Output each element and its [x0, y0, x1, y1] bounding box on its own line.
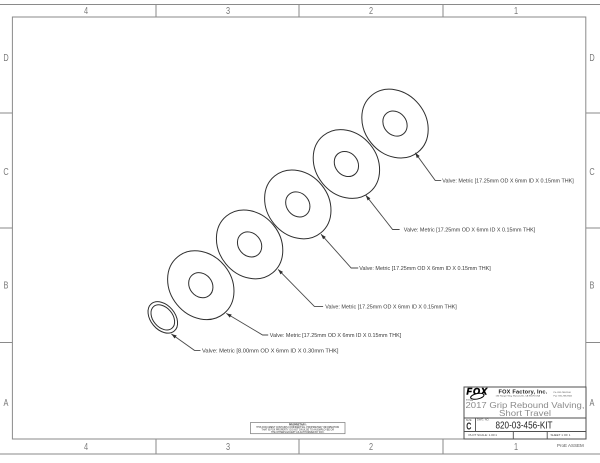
svg-text:1: 1	[514, 5, 518, 16]
svg-text:C: C	[466, 420, 472, 432]
svg-text:4: 4	[84, 5, 88, 16]
svg-text:B: B	[590, 280, 595, 291]
svg-text:Valve: Metric [17.25mm OD X 6m: Valve: Metric [17.25mm OD X 6mm ID X 0.1…	[325, 304, 457, 310]
svg-text:D: D	[3, 52, 8, 63]
svg-text:A: A	[4, 397, 9, 408]
svg-text:Ph: 831-768-1100: Ph: 831-768-1100	[554, 392, 572, 394]
svg-text:820-03-456-KIT: 820-03-456-KIT	[496, 421, 553, 432]
svg-text:Valve: Metric [17.25mm OD X 6m: Valve: Metric [17.25mm OD X 6mm ID X 0.1…	[359, 266, 491, 272]
svg-text:C: C	[3, 166, 9, 177]
svg-text:PROPRIETARY:: PROPRIETARY:	[289, 424, 307, 427]
svg-text:Valve: Metric [8.00mm OD X 6mm: Valve: Metric [8.00mm OD X 6mm ID X 0.30…	[202, 348, 339, 354]
svg-text:2: 2	[369, 441, 373, 452]
svg-text:3: 3	[226, 441, 230, 452]
svg-text:DWG. NO.: DWG. NO.	[477, 417, 490, 421]
svg-text:3: 3	[226, 5, 230, 16]
svg-text:C: C	[589, 166, 595, 177]
svg-text:THE OTHERS EXCEPT AS AUTHORIZE: THE OTHERS EXCEPT AS AUTHORIZED BY FOX.	[271, 431, 325, 434]
svg-text:D: D	[589, 52, 594, 63]
svg-text:B: B	[4, 280, 9, 291]
svg-text:Valve: Metric [17.25mm OD X 6m: Valve: Metric [17.25mm OD X 6mm ID X 0.1…	[270, 333, 402, 339]
svg-text:SHEET 1 OF 1: SHEET 1 OF 1	[551, 433, 571, 437]
svg-text:Valve: Metric [17.25mm OD X 6m: Valve: Metric [17.25mm OD X 6mm ID X 0.1…	[442, 178, 574, 184]
svg-text:Fax: 831-768-9342: Fax: 831-768-9342	[554, 396, 573, 398]
svg-text:130 Hanger Way, Watsonville, C: 130 Hanger Way, Watsonville, CA 95076 US…	[496, 395, 541, 398]
svg-text:1: 1	[514, 441, 518, 452]
svg-text:Short Travel: Short Travel	[499, 409, 551, 418]
svg-text:PLOT SCALE: 1.00:1: PLOT SCALE: 1.00:1	[469, 433, 498, 437]
svg-text:A: A	[590, 397, 595, 408]
svg-text:4: 4	[84, 441, 88, 452]
svg-text:ProE ASSEM: ProE ASSEM	[557, 443, 584, 448]
svg-text:2: 2	[369, 5, 373, 16]
svg-text:Valve: Metric [17.25mm OD X 6m: Valve: Metric [17.25mm OD X 6mm ID X 0.1…	[404, 227, 536, 233]
